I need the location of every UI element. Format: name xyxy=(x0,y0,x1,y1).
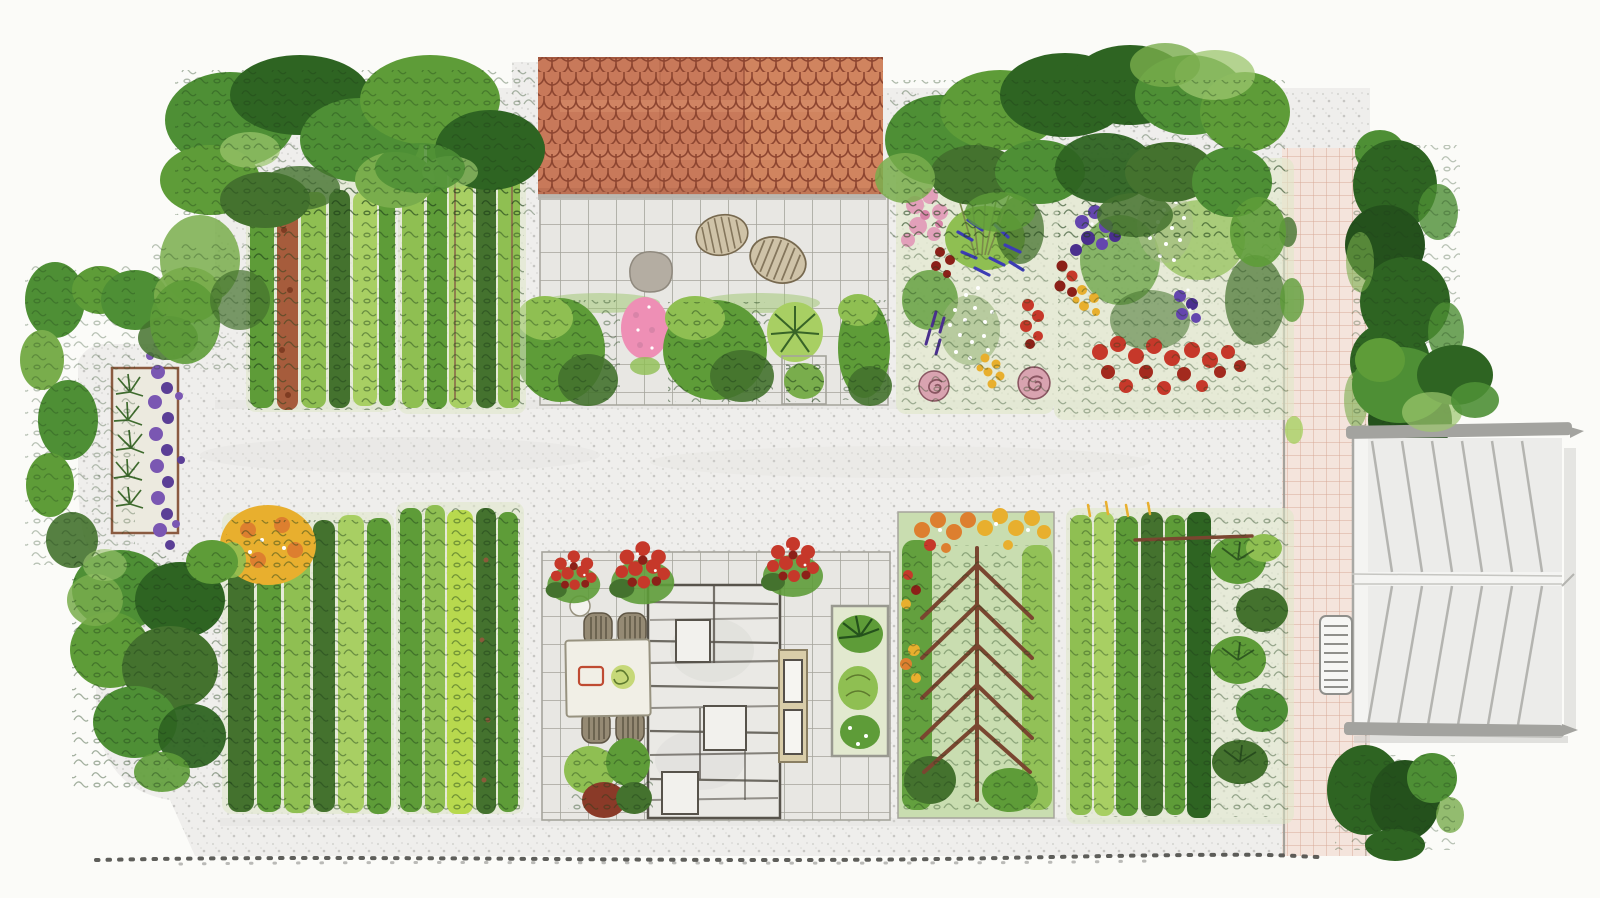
house-roof xyxy=(538,57,886,200)
fern-plant xyxy=(767,302,823,362)
espalier-trellis-bed xyxy=(898,508,1054,818)
garden-plan-canvas xyxy=(0,0,1600,898)
shrub xyxy=(838,294,892,406)
dining-patio xyxy=(542,537,890,820)
bush-below-shed xyxy=(1327,745,1464,861)
parsley-tile-box xyxy=(782,356,826,404)
slab-building xyxy=(648,585,780,818)
shrub xyxy=(663,296,774,402)
garden-plan-illustration xyxy=(0,0,1600,898)
shrub xyxy=(515,296,620,406)
bench xyxy=(1320,616,1352,694)
garden-shed-roof xyxy=(1344,422,1584,743)
veg-bed-bottom-wide xyxy=(1066,502,1294,824)
planter-box xyxy=(832,606,888,756)
potted-plants-bottom xyxy=(564,738,653,818)
entrance-door xyxy=(779,650,807,762)
stone xyxy=(630,252,672,292)
veg-bed-bottom-2 xyxy=(396,502,524,814)
veg-bed-bottom-1 xyxy=(218,505,394,814)
salad-plate xyxy=(611,665,635,689)
